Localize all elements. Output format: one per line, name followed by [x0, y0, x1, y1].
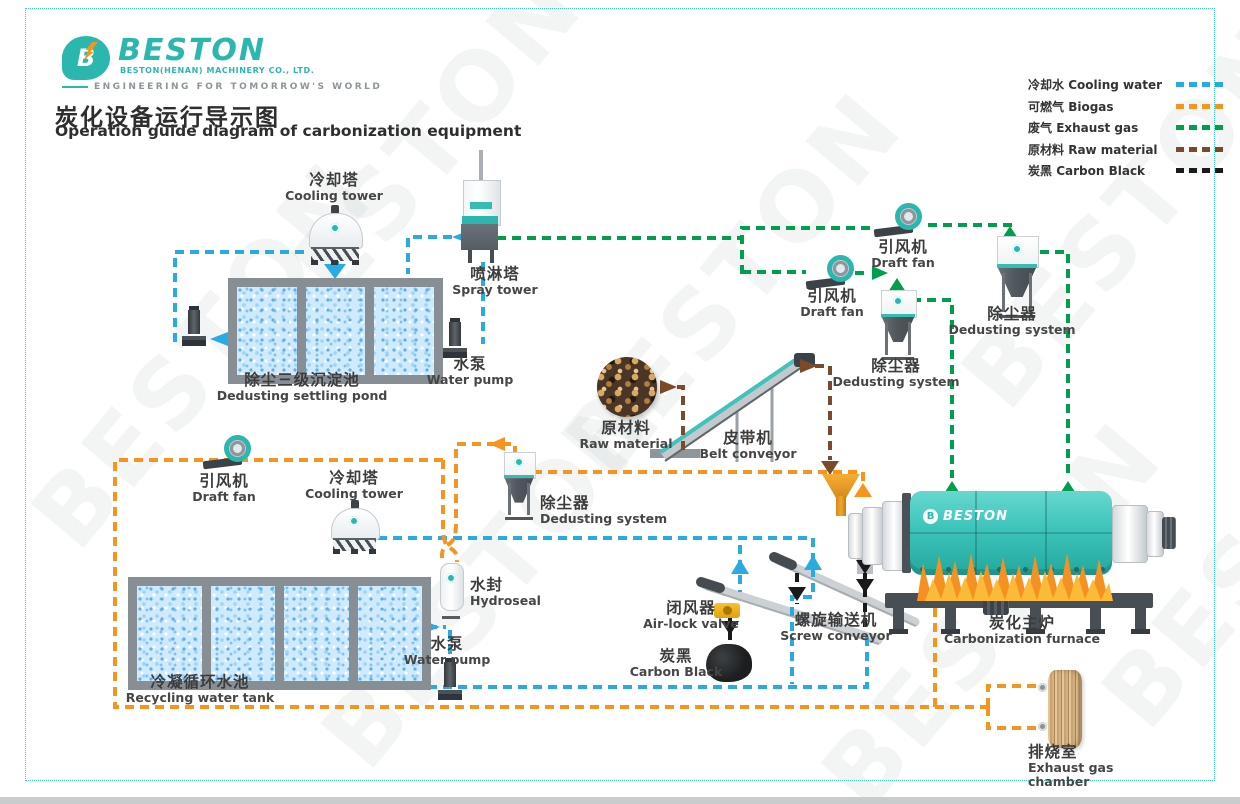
teal-strip — [997, 264, 1037, 268]
hydroseal-graphic — [440, 563, 462, 619]
beston-dot-icon — [446, 573, 456, 583]
cooling-tower-bottom-graphic — [331, 500, 378, 554]
tower-feet — [333, 549, 376, 554]
beston-logo-text: BESTON — [118, 36, 266, 66]
label-water-pump-bottom: 水泵Water pump — [367, 636, 527, 667]
beston-logo-subtitle: BESTON(HENAN) MACHINERY CO., LTD. — [120, 66, 314, 75]
tagline-text: ENGINEERING FOR TOMORROW'S WORLD — [94, 82, 382, 92]
legend-label: 炭黑 Carbon Black — [1028, 162, 1145, 179]
dedust-foot — [505, 517, 533, 520]
tank-cell — [211, 586, 276, 681]
bottom-edge-strip — [0, 797, 1240, 804]
exhaust-pipe — [479, 150, 483, 182]
legend-swatch-cooling-water — [1176, 82, 1228, 87]
legend-swatch-raw-material — [1176, 147, 1228, 152]
furnace-beston-logo: B BESTON — [923, 509, 1008, 524]
cooling-tower-top-graphic — [309, 205, 361, 265]
hydroseal-foot — [442, 616, 460, 619]
legend-label: 冷却水 Cooling water — [1028, 76, 1162, 93]
pump-base — [182, 340, 206, 346]
legend-label: 可燃气 Biogas — [1028, 98, 1114, 115]
beston-dot-icon — [1012, 244, 1022, 254]
legend-row-cooling-water: 冷却水 Cooling water — [1028, 78, 1228, 91]
flow-legend: 冷却水 Cooling water 可燃气 Biogas 废气 Exhaust … — [1028, 78, 1228, 177]
tagline-bar — [62, 86, 88, 88]
raw-material-photo — [597, 357, 657, 417]
label-water-pump-top: 水泵Water pump — [390, 356, 550, 387]
dedust-leg — [527, 483, 530, 516]
beston-dot-icon — [330, 223, 340, 233]
label-cooling-tower-bottom: 冷却塔Cooling tower — [274, 470, 434, 501]
tower-base — [461, 224, 498, 250]
beston-dot-icon — [514, 457, 524, 467]
legend-row-biogas: 可燃气 Biogas — [1028, 100, 1228, 113]
legend-label: 废气 Exhaust gas — [1028, 119, 1138, 136]
legend-swatch-exhaust-gas — [1176, 125, 1228, 130]
furnace-logo-text: BESTON — [943, 509, 1008, 524]
label-spray-tower: 喷淋塔Spray tower — [415, 266, 575, 297]
base-leg — [1135, 608, 1146, 630]
tank-cell — [284, 586, 349, 681]
chamber-port — [1038, 722, 1047, 731]
label-carbon-black: 炭黑Carbon Black — [596, 648, 756, 679]
pond-divider — [365, 287, 374, 375]
burner-flames — [915, 543, 1115, 603]
diagram-page: BESTON BESTON BESTON BESTON BESTON BESTO… — [0, 0, 1240, 804]
teal-strip — [504, 475, 534, 478]
fan-impeller — [224, 435, 251, 462]
label-exhaust-chamber: 排烧室Exhaust gas chamber — [1028, 744, 1178, 789]
exhaust-chamber-graphic — [1048, 670, 1082, 748]
circulation-pump-graphic — [182, 306, 206, 346]
fan-impeller — [895, 203, 922, 230]
legend-row-carbon-black: 炭黑 Carbon Black — [1028, 164, 1228, 177]
front-cylinder — [862, 507, 884, 565]
dedusting-low-graphic — [504, 452, 534, 520]
pond-cell — [237, 287, 297, 375]
beston-logo-tagline: ENGINEERING FOR TOMORROW'S WORLD — [62, 82, 382, 92]
tank-divider — [202, 586, 211, 681]
beston-dot-icon — [349, 516, 359, 526]
label-recycling-tank: 冷凝循环水池Recycling water tank — [110, 674, 290, 705]
spray-tower-graphic — [463, 150, 499, 266]
dedust-leg — [508, 483, 511, 516]
legend-row-exhaust-gas: 废气 Exhaust gas — [1028, 121, 1228, 134]
pump-base — [438, 694, 462, 700]
label-screw-conveyor: 螺旋输送机Screw conveyor — [756, 612, 916, 643]
legend-row-raw-material: 原材料 Raw material — [1028, 143, 1228, 156]
legend-swatch-biogas — [1176, 104, 1228, 109]
label-belt-conveyor: 皮带机Belt conveyor — [668, 430, 828, 461]
label-draft-fan-mid: 引风机Draft fan — [752, 288, 912, 319]
tower-leg — [490, 250, 494, 263]
label-dedusting-low: 除尘器Dedusting system — [540, 495, 670, 526]
pump-body — [188, 310, 200, 334]
water-pump-top-graphic — [443, 318, 467, 358]
label-air-lock-valve: 闭风器Air-lock valve — [611, 600, 771, 631]
dedust-leg — [885, 322, 888, 356]
beston-tag — [470, 202, 492, 209]
end-cylinder — [1112, 505, 1148, 563]
teal-band — [462, 216, 498, 224]
draft-fan-top-graphic — [874, 203, 924, 237]
label-draft-fan-top: 引风机Draft fan — [823, 239, 983, 270]
pond-cell — [306, 287, 366, 375]
label-settling-pond: 除尘三级沉淀池Dedusting settling pond — [212, 372, 392, 403]
pump-body — [449, 322, 461, 346]
page-title-en: Operation guide diagram of carbonization… — [55, 122, 521, 140]
tower-leg — [468, 250, 472, 263]
shaft-knob — [1162, 517, 1176, 549]
drum-seam — [910, 532, 1112, 534]
tank-divider — [349, 586, 358, 681]
dedust-leg — [908, 322, 911, 356]
legend-swatch-carbon-black — [1176, 168, 1228, 173]
label-cooling-tower-top: 冷却塔Cooling tower — [254, 172, 414, 203]
draft-fan-bottom-graphic — [203, 435, 253, 469]
chamber-port — [1038, 683, 1047, 692]
tank-cell — [137, 586, 202, 681]
label-dedusting-mid: 除尘器Dedusting system — [816, 358, 976, 389]
tower-feet — [311, 260, 359, 265]
legend-label: 原材料 Raw material — [1028, 141, 1158, 158]
label-hydroseal: 水封Hydroseal — [470, 577, 580, 608]
base-foot — [1131, 629, 1150, 634]
beston-circle-icon: B — [923, 509, 938, 524]
label-furnace: 炭化主炉Carbonization furnace — [942, 615, 1102, 646]
tank-divider — [275, 586, 284, 681]
label-dedusting-right: 除尘器Dedusting system — [932, 306, 1092, 337]
hydroseal-body — [440, 563, 464, 611]
pond-divider — [297, 287, 306, 375]
